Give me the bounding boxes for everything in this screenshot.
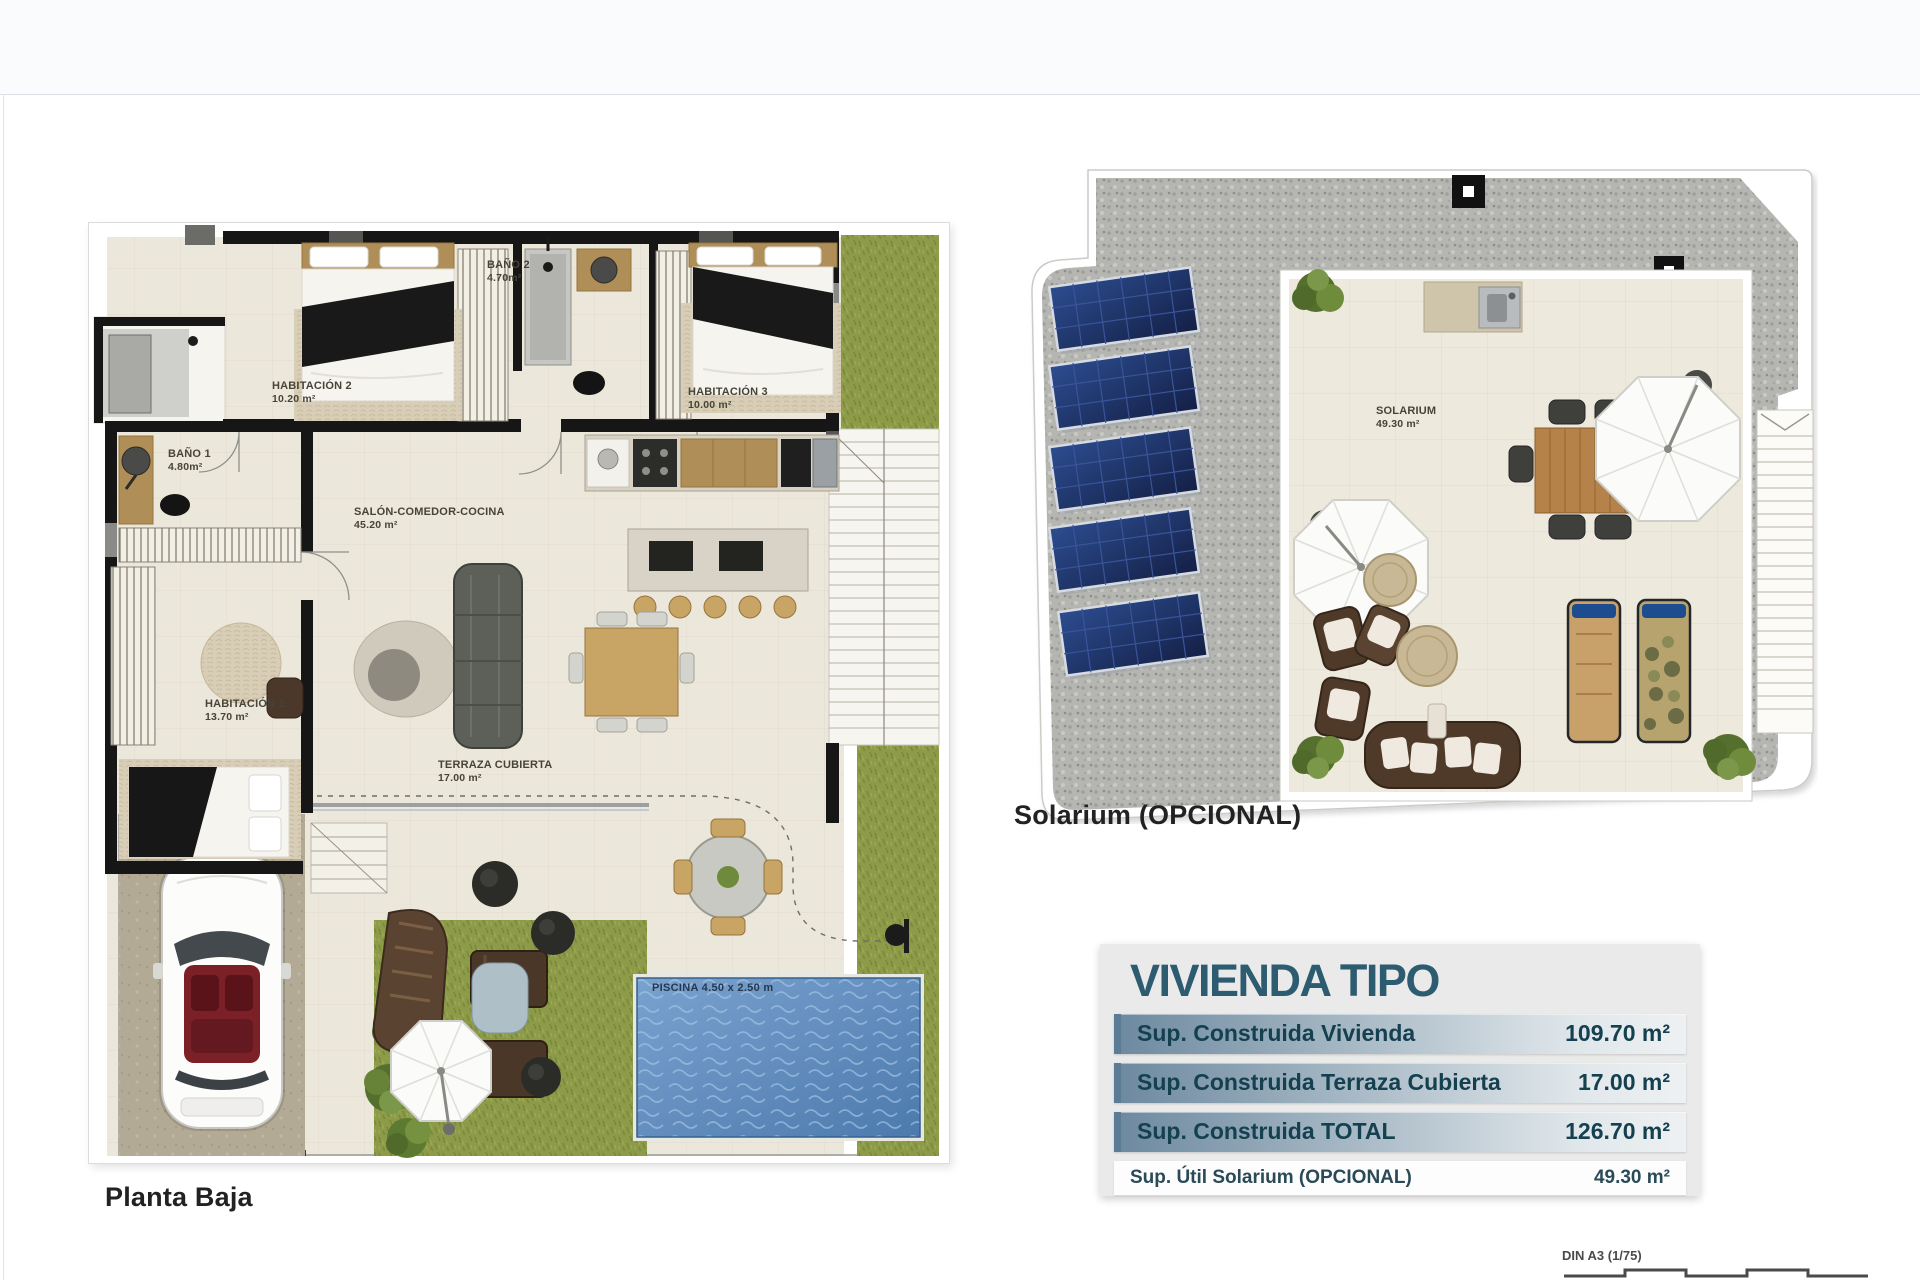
sliding-door: [313, 803, 649, 811]
ground-floor-plan: [88, 222, 950, 1164]
room-label-habitacion-3: HABITACIÓN 3 10.00 m²: [688, 385, 768, 413]
roof-sink-counter: [1424, 282, 1522, 332]
scale-bar-graphic: 0 1 2 3 4 5: [1562, 1265, 1872, 1280]
room-label-terraza: TERRAZA CUBIERTA 17.00 m²: [438, 758, 552, 786]
room-area: 49.30 m²: [1376, 418, 1436, 432]
solarium-plan: [1028, 164, 1818, 824]
row-label: Sup. Construida Vivienda: [1121, 1020, 1415, 1047]
row-value: 109.70 m²: [1565, 1020, 1686, 1047]
pool-label: PISCINA 4.50 x 2.50 m: [652, 982, 773, 994]
roof-stairs: [1757, 410, 1813, 733]
solarium-caption: Solarium (OPCIONAL): [1014, 800, 1301, 831]
kitchen-island: [628, 529, 808, 618]
room-label-bano-1: BAÑO 1 4.80m²: [168, 447, 211, 475]
plan-sheet-page: HABITACIÓN 2 10.20 m² BAÑO 2 4.70m² HABI…: [0, 0, 1920, 1280]
exterior-stairs: [829, 429, 939, 745]
ground-floor-caption: Planta Baja: [105, 1182, 253, 1213]
room-label-salon: SALÓN-COMEDOR-COCINA 45.20 m²: [354, 505, 505, 533]
salon-dining-table: [569, 612, 694, 732]
salon-sofa: [454, 564, 522, 748]
row-value: 126.70 m²: [1565, 1118, 1686, 1145]
room-label-bano-2: BAÑO 2 4.70m²: [487, 258, 530, 286]
room-label-solarium: SOLARIUM 49.30 m²: [1376, 404, 1436, 432]
sheet-left-edge-line: [3, 94, 4, 1280]
room-area: 4.70m²: [487, 272, 530, 286]
ground-floor-plan-drawing: [89, 223, 947, 1161]
room-area: 45.20 m²: [354, 519, 505, 533]
room-label-habitacion-1: HABITACIÓN 1 13.70 m²: [205, 697, 285, 725]
sheet-top-band: [0, 0, 1920, 95]
room-name: TERRAZA CUBIERTA: [438, 758, 552, 772]
row-label: Sup. Construida Terraza Cubierta: [1121, 1069, 1501, 1096]
row-label: Sup. Útil Solarium (OPCIONAL): [1114, 1167, 1412, 1189]
room-area: 10.20 m²: [272, 393, 352, 407]
room-area: 13.70 m²: [205, 711, 285, 725]
room-area: 17.00 m²: [438, 772, 552, 786]
pool: [633, 974, 924, 1141]
car: [153, 853, 291, 1131]
row-value: 49.30 m²: [1594, 1167, 1686, 1189]
table-row: Sup. Útil Solarium (OPCIONAL) 49.30 m²: [1114, 1161, 1686, 1195]
room-name: BAÑO 1: [168, 447, 211, 461]
bed-habitacion-1: [119, 759, 301, 859]
row-label: Sup. Construida TOTAL: [1121, 1118, 1396, 1145]
solar-panels: [1049, 267, 1211, 680]
summary-table: VIVIENDA TIPO Sup. Construida Vivienda 1…: [1100, 944, 1700, 1196]
room-name: HABITACIÓN 1: [205, 697, 285, 711]
room-name: HABITACIÓN 2: [272, 379, 352, 393]
room-name: SOLARIUM: [1376, 404, 1436, 418]
solarium-plan-drawing: [1028, 164, 1818, 824]
room-name: SALÓN-COMEDOR-COCINA: [354, 505, 505, 519]
room-area: 4.80m²: [168, 461, 211, 475]
kitchen-counter: [585, 435, 839, 491]
side-steps: [311, 823, 387, 893]
room-label-habitacion-2: HABITACIÓN 2 10.20 m²: [272, 379, 352, 407]
table-row: Sup. Construida Terraza Cubierta 17.00 m…: [1114, 1063, 1686, 1103]
row-value: 17.00 m²: [1578, 1069, 1686, 1096]
scale-label: DIN A3 (1/75): [1562, 1248, 1872, 1263]
summary-table-rows: Sup. Construida Vivienda 109.70 m² Sup. …: [1114, 1014, 1686, 1195]
room-name: BAÑO 2: [487, 258, 530, 272]
table-row: Sup. Construida TOTAL 126.70 m²: [1114, 1112, 1686, 1152]
room-name: HABITACIÓN 3: [688, 385, 768, 399]
room-area: 10.00 m²: [688, 399, 768, 413]
scale-bar: DIN A3 (1/75) 0 1 2 3 4 5: [1562, 1248, 1872, 1280]
table-row: Sup. Construida Vivienda 109.70 m²: [1114, 1014, 1686, 1054]
entry-porch: [94, 317, 225, 423]
summary-table-title: VIVIENDA TIPO: [1130, 958, 1700, 1004]
salon-rug: [354, 621, 458, 717]
